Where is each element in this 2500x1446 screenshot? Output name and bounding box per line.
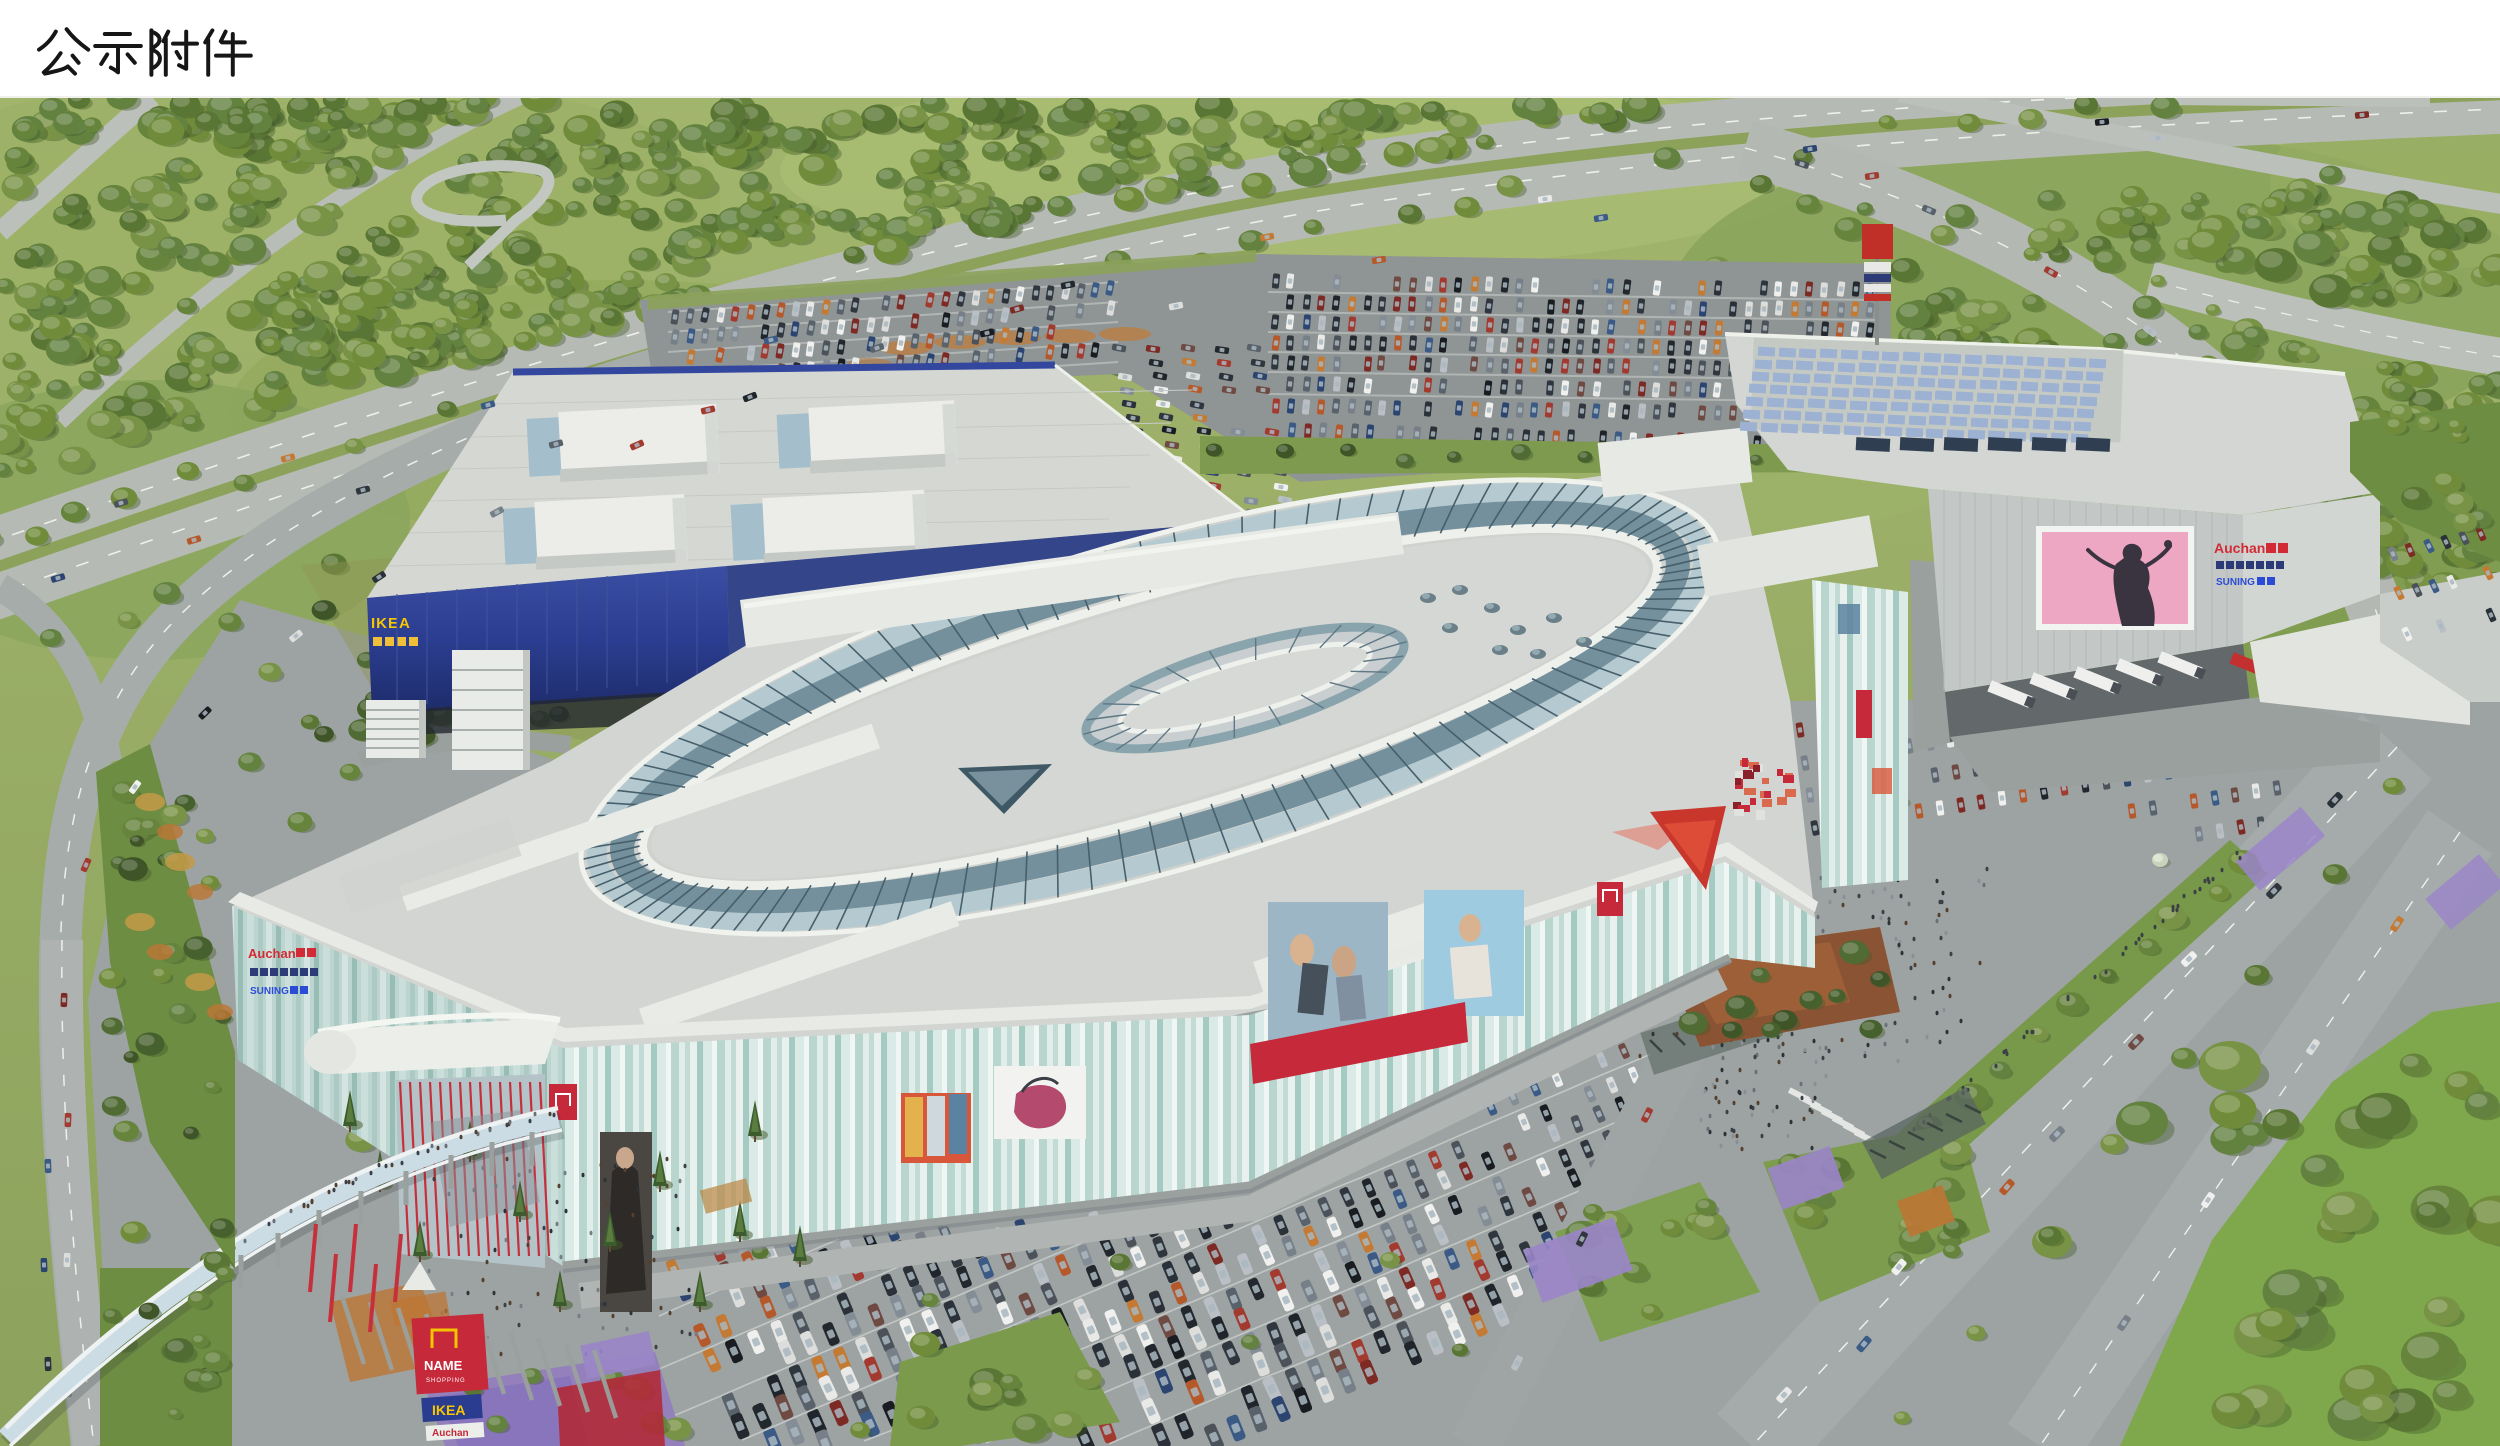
svg-text:IKEA: IKEA xyxy=(371,615,411,632)
svg-text:NAME: NAME xyxy=(424,1358,463,1373)
svg-text:Auchan: Auchan xyxy=(248,946,296,961)
svg-text:SUNING: SUNING xyxy=(250,986,289,997)
svg-text:Auchan: Auchan xyxy=(432,1428,469,1439)
svg-text:SUNING: SUNING xyxy=(2216,577,2255,588)
svg-text:IKEA: IKEA xyxy=(432,1402,465,1418)
svg-text:Auchan: Auchan xyxy=(2214,540,2265,556)
svg-text:SHOPPING: SHOPPING xyxy=(426,1378,466,1384)
